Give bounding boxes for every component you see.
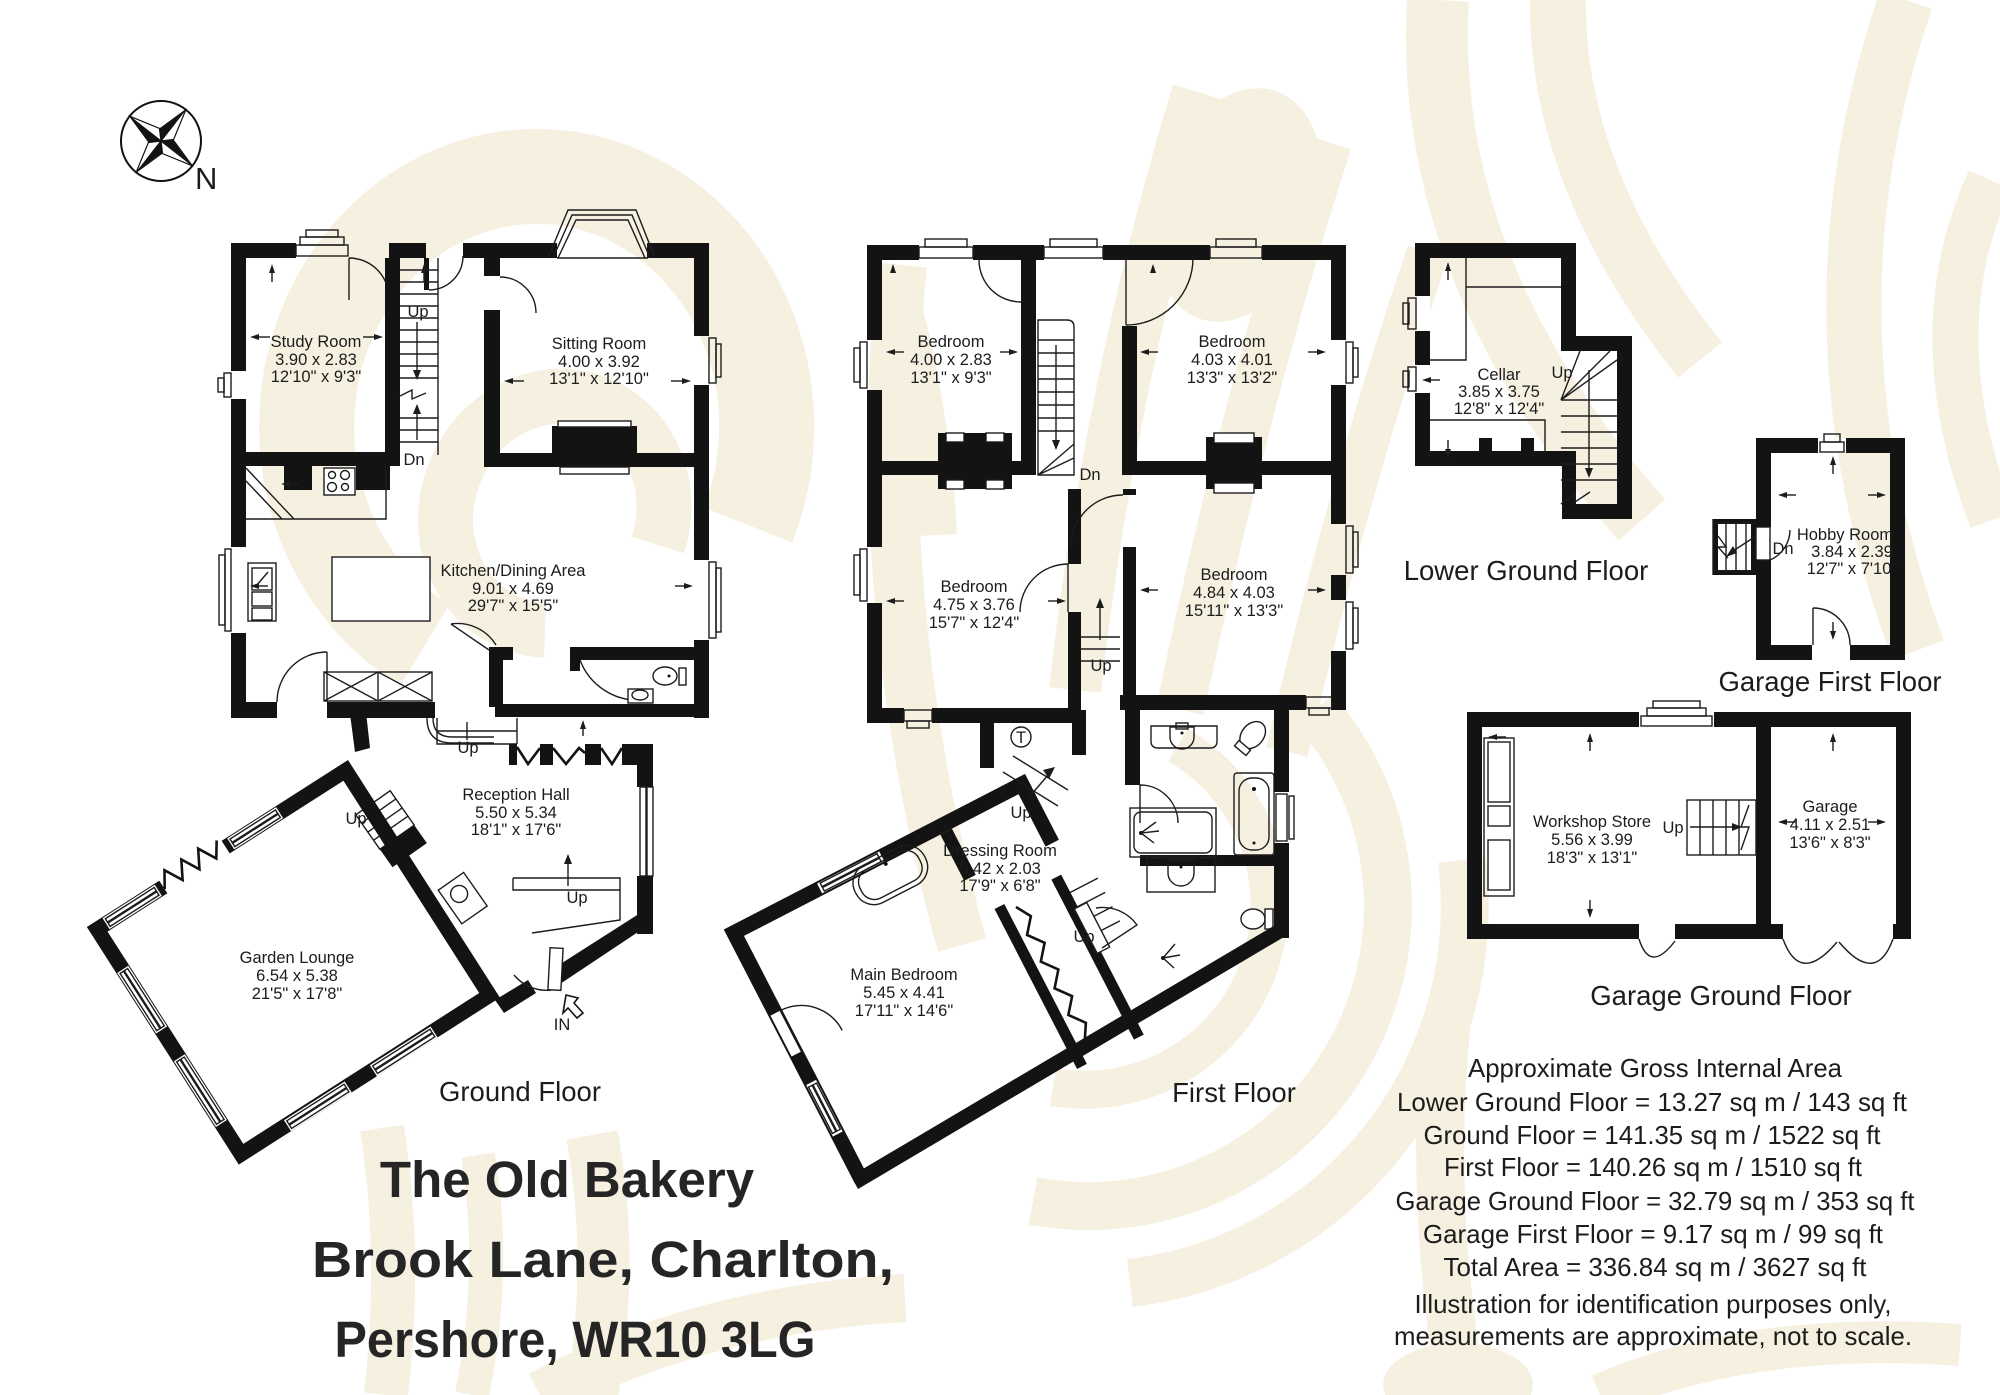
svg-text:Hobby Room: Hobby Room <box>1797 526 1893 544</box>
svg-text:17'11" x 14'6": 17'11" x 14'6" <box>855 1002 954 1020</box>
svg-text:4.75 x 3.76: 4.75 x 3.76 <box>933 596 1015 614</box>
svg-text:4.00 x 3.92: 4.00 x 3.92 <box>558 353 640 371</box>
svg-text:Brook Lane, Charlton,: Brook Lane, Charlton, <box>312 1231 894 1288</box>
svg-text:Dn: Dn <box>1079 466 1100 484</box>
svg-text:Approximate Gross Internal Are: Approximate Gross Internal Area <box>1468 1053 1843 1083</box>
svg-text:Study Room: Study Room <box>271 333 362 351</box>
svg-text:N: N <box>195 161 217 196</box>
svg-text:12'8" x 12'4": 12'8" x 12'4" <box>1454 400 1545 418</box>
svg-text:5.56 x 3.99: 5.56 x 3.99 <box>1551 831 1633 849</box>
svg-text:Reception Hall: Reception Hall <box>462 786 569 804</box>
svg-text:The Old Bakery: The Old Bakery <box>380 1151 755 1208</box>
svg-text:4.00 x 2.83: 4.00 x 2.83 <box>910 351 992 369</box>
svg-text:13'1" x 12'10": 13'1" x 12'10" <box>549 370 649 388</box>
svg-text:Pershore, WR10 3LG: Pershore, WR10 3LG <box>335 1311 816 1368</box>
svg-text:Garden Lounge: Garden Lounge <box>240 949 355 967</box>
svg-text:3.84 x 2.39: 3.84 x 2.39 <box>1811 543 1893 561</box>
svg-text:Up: Up <box>566 889 587 907</box>
svg-text:17'9" x 6'8": 17'9" x 6'8" <box>959 877 1040 895</box>
svg-text:15'7" x 12'4": 15'7" x 12'4" <box>929 614 1020 632</box>
svg-text:First Floor = 140.26 sq m / 15: First Floor = 140.26 sq m / 1510 sq ft <box>1444 1152 1863 1182</box>
svg-text:Garage First Floor = 9.17 sq m: Garage First Floor = 9.17 sq m / 99 sq f… <box>1423 1219 1884 1249</box>
svg-text:18'3" x 13'1": 18'3" x 13'1" <box>1547 849 1638 867</box>
svg-text:Workshop Store: Workshop Store <box>1533 813 1651 831</box>
svg-text:Kitchen/Dining Area: Kitchen/Dining Area <box>441 562 587 580</box>
svg-text:Up: Up <box>345 810 366 828</box>
svg-text:Illustration for identificatio: Illustration for identification purposes… <box>1415 1289 1892 1319</box>
svg-text:Ground Floor: Ground Floor <box>439 1076 601 1107</box>
svg-text:Dn: Dn <box>403 451 424 469</box>
svg-text:Cellar: Cellar <box>1477 366 1521 384</box>
svg-text:Garage First Floor: Garage First Floor <box>1718 666 1941 697</box>
svg-text:Up: Up <box>1010 804 1031 822</box>
svg-text:Dressing Room: Dressing Room <box>943 842 1057 860</box>
svg-text:13'6" x 8'3": 13'6" x 8'3" <box>1789 834 1870 852</box>
svg-text:T: T <box>1016 729 1026 747</box>
svg-text:5.45 x 4.41: 5.45 x 4.41 <box>863 984 945 1002</box>
svg-text:Bedroom: Bedroom <box>918 333 985 351</box>
svg-text:Bedroom: Bedroom <box>1201 566 1268 584</box>
svg-text:12'10" x 9'3": 12'10" x 9'3" <box>271 368 362 386</box>
svg-text:4.03 x 4.01: 4.03 x 4.01 <box>1191 351 1273 369</box>
svg-text:Garage: Garage <box>1802 798 1857 816</box>
svg-text:13'3" x 13'2": 13'3" x 13'2" <box>1187 369 1278 387</box>
svg-text:4.84 x 4.03: 4.84 x 4.03 <box>1193 584 1275 602</box>
svg-text:Garage Ground Floor: Garage Ground Floor <box>1590 980 1851 1011</box>
svg-text:13'1" x 9'3": 13'1" x 9'3" <box>910 369 991 387</box>
svg-text:Up: Up <box>457 739 478 757</box>
svg-text:15'11" x 13'3": 15'11" x 13'3" <box>1185 602 1284 620</box>
svg-text:18'1" x 17'6": 18'1" x 17'6" <box>471 821 562 839</box>
svg-text:4.11 x 2.51: 4.11 x 2.51 <box>1790 816 1870 834</box>
svg-text:First Floor: First Floor <box>1172 1077 1296 1108</box>
svg-text:Bedroom: Bedroom <box>941 578 1008 596</box>
svg-text:Ground Floor = 141.35 sq m / 1: Ground Floor = 141.35 sq m / 1522 sq ft <box>1424 1120 1882 1150</box>
svg-text:Up: Up <box>407 303 428 321</box>
svg-text:Lower Ground Floor: Lower Ground Floor <box>1404 555 1649 586</box>
svg-text:Up: Up <box>1662 819 1683 837</box>
svg-text:6.54 x 5.38: 6.54 x 5.38 <box>256 967 338 985</box>
svg-text:Up: Up <box>1073 928 1094 946</box>
svg-text:Bedroom: Bedroom <box>1199 333 1266 351</box>
svg-text:Main Bedroom: Main Bedroom <box>850 966 957 984</box>
svg-text:5.42 x 2.03: 5.42 x 2.03 <box>959 860 1041 878</box>
svg-text:Up: Up <box>1090 657 1111 675</box>
svg-text:12'7" x 7'10": 12'7" x 7'10" <box>1807 560 1898 578</box>
svg-text:Sitting Room: Sitting Room <box>552 335 646 353</box>
svg-text:3.90 x 2.83: 3.90 x 2.83 <box>275 351 357 369</box>
svg-text:Total Area = 336.84 sq m / 362: Total Area = 336.84 sq m / 3627 sq ft <box>1444 1252 1868 1282</box>
svg-text:29'7" x 15'5": 29'7" x 15'5" <box>468 597 559 615</box>
svg-text:5.50 x 5.34: 5.50 x 5.34 <box>475 804 557 822</box>
svg-text:3.85 x 3.75: 3.85 x 3.75 <box>1458 383 1540 401</box>
svg-text:Dn: Dn <box>1772 540 1793 558</box>
svg-text:measurements are approximate,: measurements are approximate, not to sca… <box>1394 1321 1912 1351</box>
svg-text:21'5" x 17'8": 21'5" x 17'8" <box>252 985 343 1003</box>
svg-text:Lower Ground Floor = 13.27 sq: Lower Ground Floor = 13.27 sq m / 143 sq… <box>1397 1087 1908 1117</box>
svg-text:9.01 x 4.69: 9.01 x 4.69 <box>472 580 554 598</box>
svg-text:Up: Up <box>1551 364 1572 382</box>
svg-text:Garage Ground Floor = 32.79 sq: Garage Ground Floor = 32.79 sq m / 353 s… <box>1396 1186 1916 1216</box>
svg-text:IN: IN <box>554 1016 571 1034</box>
